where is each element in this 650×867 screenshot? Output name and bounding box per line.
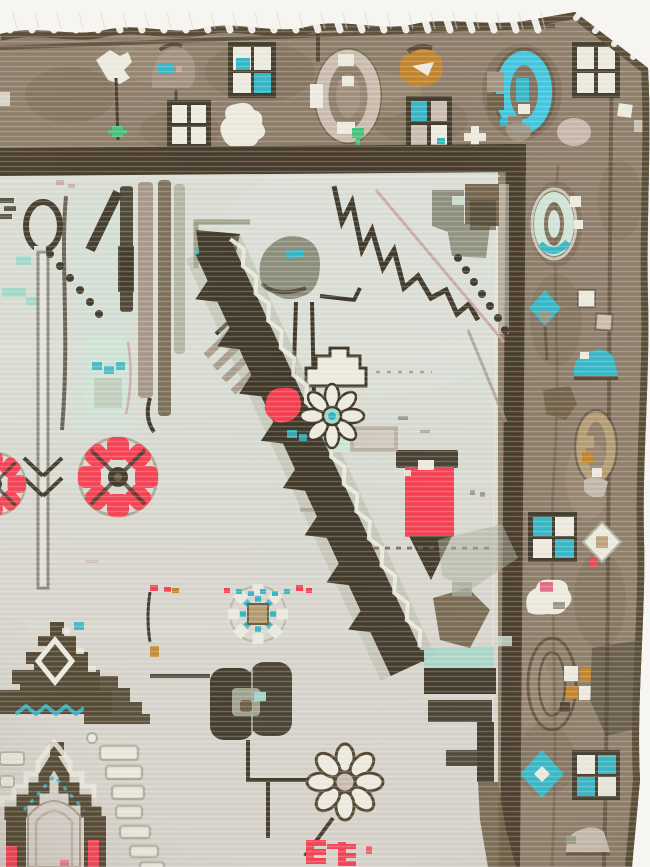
rug bbox=[0, 0, 650, 867]
rug-photograph bbox=[0, 0, 650, 867]
rug-photo-svg bbox=[0, 0, 650, 867]
vignette bbox=[0, 0, 650, 867]
